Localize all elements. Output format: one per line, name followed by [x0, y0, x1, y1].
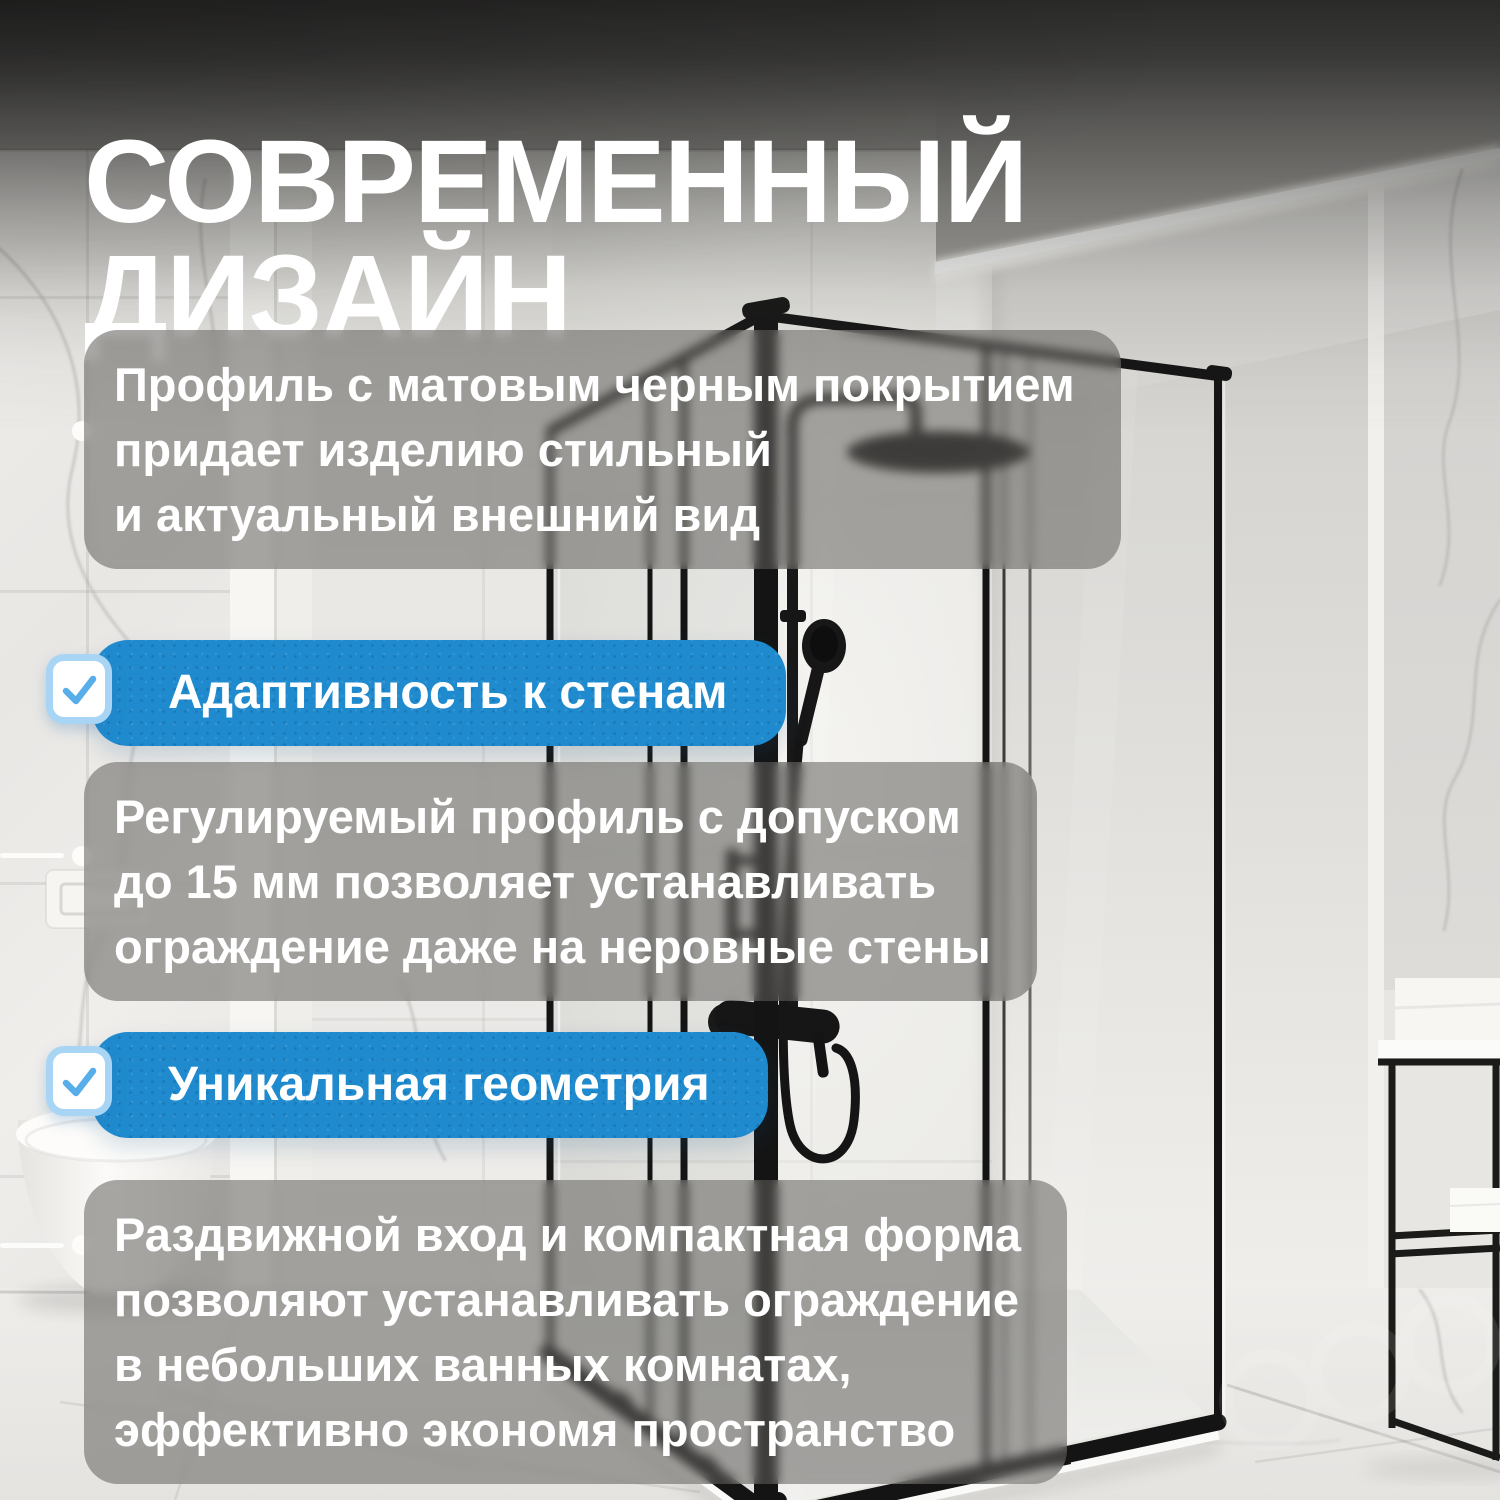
feature-badge-adaptability: Адаптивность к стенам — [92, 640, 786, 746]
bullet-line — [0, 853, 64, 858]
badge-label: Адаптивность к стенам — [168, 666, 728, 719]
paragraph-line: и актуальный внешний вид — [114, 482, 1075, 547]
paragraph-line: Раздвижной вход и компактная форма — [114, 1202, 1021, 1267]
feature-paragraph-2: Регулируемый профиль с допуском до 15 мм… — [84, 762, 1037, 1001]
check-icon — [46, 1046, 112, 1116]
feature-paragraph-3: Раздвижной вход и компактная форма позво… — [84, 1180, 1067, 1484]
paragraph-line: эффективно экономя пространство — [114, 1397, 1021, 1462]
check-icon — [46, 654, 112, 724]
photo-watermark — [1226, 1300, 1494, 1444]
paragraph-line: ограждение даже на неровные стены — [114, 914, 991, 979]
page-title: СОВРЕМЕННЫЙ ДИЗАЙН — [84, 125, 1026, 355]
product-infographic: СОВРЕМЕННЫЙ ДИЗАЙН Профиль с матовым чер… — [0, 0, 1500, 1500]
paragraph-line: придает изделию стильный — [114, 417, 1075, 482]
paragraph-line: Профиль с матовым черным покрытием — [114, 352, 1075, 417]
title-line-1: СОВРЕМЕННЫЙ — [84, 125, 1026, 240]
bullet-line — [0, 1243, 64, 1248]
feature-badge-geometry: Уникальная геометрия — [92, 1032, 768, 1138]
feature-paragraph-1: Профиль с матовым черным покрытием прида… — [84, 330, 1121, 569]
badge-label: Уникальная геометрия — [168, 1058, 710, 1111]
paragraph-line: Регулируемый профиль с допуском — [114, 784, 991, 849]
paragraph-line: до 15 мм позволяет устанавливать — [114, 849, 991, 914]
paragraph-line: в небольших ванных комнатах, — [114, 1332, 1021, 1397]
paragraph-line: позволяют устанавливать ограждение — [114, 1267, 1021, 1332]
